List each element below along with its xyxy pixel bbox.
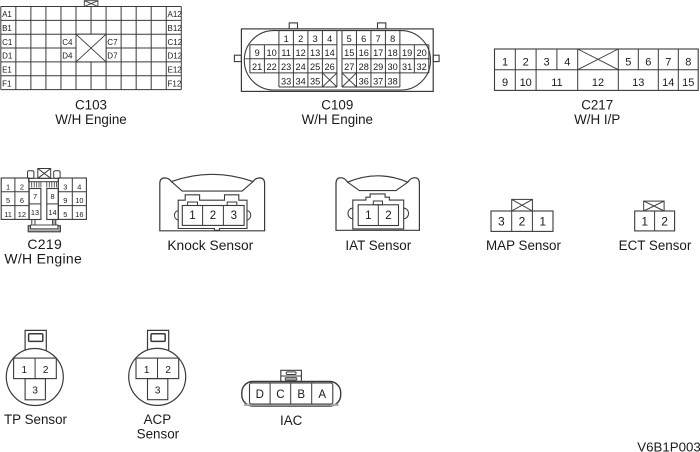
svg-text:6: 6 [361,34,366,44]
svg-text:10: 10 [520,77,532,89]
svg-text:11: 11 [281,48,291,58]
svg-text:34: 34 [296,76,306,86]
svg-text:4: 4 [327,34,332,44]
svg-text:29: 29 [373,62,383,72]
svg-text:33: 33 [281,76,291,86]
svg-text:23: 23 [281,62,291,72]
svg-text:3: 3 [313,34,318,44]
svg-text:7: 7 [665,56,671,68]
svg-text:ACP: ACP [144,412,172,427]
svg-text:9: 9 [255,48,260,58]
svg-text:D4: D4 [62,52,73,61]
svg-text:3: 3 [498,214,505,228]
svg-text:19: 19 [402,48,412,58]
svg-text:13: 13 [632,77,644,89]
svg-text:16: 16 [75,210,83,219]
svg-text:10: 10 [267,48,277,58]
svg-text:5: 5 [6,196,10,205]
svg-text:F12: F12 [168,79,182,88]
svg-text:A12: A12 [168,10,183,19]
svg-text:8: 8 [685,56,691,68]
svg-text:10: 10 [75,196,83,205]
svg-text:2: 2 [661,214,668,228]
svg-text:D7: D7 [107,52,118,61]
svg-text:14: 14 [48,208,56,217]
svg-text:15: 15 [682,77,694,89]
svg-text:B12: B12 [168,24,183,33]
svg-text:D1: D1 [2,52,13,61]
svg-text:36: 36 [359,76,369,86]
svg-text:1: 1 [502,56,508,68]
svg-text:14: 14 [662,77,674,89]
svg-text:6: 6 [20,196,24,205]
svg-text:C12: C12 [168,38,183,47]
svg-text:8: 8 [50,192,54,201]
svg-text:26: 26 [325,62,335,72]
svg-text:MAP Sensor: MAP Sensor [486,238,561,253]
svg-text:8: 8 [390,34,395,44]
svg-text:2: 2 [165,365,171,376]
svg-text:V6B1P003: V6B1P003 [637,440,700,452]
svg-text:W/H Engine: W/H Engine [302,112,373,127]
svg-text:31: 31 [402,62,412,72]
svg-text:9: 9 [502,77,508,89]
svg-text:17: 17 [373,48,383,58]
svg-text:2: 2 [210,210,216,222]
svg-text:12: 12 [18,210,26,219]
svg-text:TP Sensor: TP Sensor [4,412,68,427]
svg-text:18: 18 [388,48,398,58]
svg-text:38: 38 [388,76,398,86]
svg-text:1: 1 [144,365,150,376]
svg-text:C217: C217 [581,98,613,113]
svg-text:9: 9 [63,196,67,205]
svg-text:1: 1 [189,210,195,222]
svg-text:7: 7 [33,192,37,201]
svg-text:11: 11 [551,77,562,89]
svg-text:6: 6 [645,56,651,68]
svg-text:4: 4 [564,56,570,68]
svg-text:IAC: IAC [280,413,303,428]
svg-text:C7: C7 [107,38,118,47]
svg-text:28: 28 [359,62,369,72]
svg-text:C: C [276,389,284,401]
svg-text:24: 24 [296,62,306,72]
svg-text:15: 15 [344,48,354,58]
svg-text:A: A [318,389,326,401]
svg-text:1: 1 [22,365,28,376]
svg-text:Sensor: Sensor [137,427,180,442]
svg-text:2: 2 [523,56,529,68]
svg-text:35: 35 [310,76,320,86]
svg-text:A1: A1 [2,10,12,19]
svg-text:14: 14 [325,48,335,58]
svg-text:2: 2 [519,214,526,228]
svg-text:37: 37 [373,76,383,86]
svg-text:22: 22 [267,62,277,72]
svg-text:D12: D12 [168,52,183,61]
svg-text:25: 25 [310,62,320,72]
svg-text:C1: C1 [2,38,13,47]
svg-text:32: 32 [416,62,426,72]
svg-text:2: 2 [20,182,24,191]
svg-text:12: 12 [296,48,306,58]
svg-text:IAT Sensor: IAT Sensor [345,238,411,253]
svg-text:13: 13 [310,48,320,58]
svg-text:C109: C109 [321,98,353,113]
svg-text:Knock Sensor: Knock Sensor [167,238,253,253]
svg-text:16: 16 [359,48,369,58]
svg-text:5: 5 [63,210,67,219]
svg-text:4: 4 [77,182,81,191]
svg-text:13: 13 [31,208,39,217]
svg-text:1: 1 [641,214,648,228]
svg-text:20: 20 [416,48,426,58]
svg-text:C4: C4 [62,38,73,47]
svg-text:30: 30 [388,62,398,72]
svg-text:E1: E1 [2,66,12,75]
svg-text:11: 11 [4,210,12,219]
svg-text:1: 1 [365,210,371,222]
svg-text:W/H I/P: W/H I/P [574,112,620,127]
svg-text:2: 2 [385,210,391,222]
svg-text:1: 1 [284,34,289,44]
svg-text:F1: F1 [2,79,12,88]
svg-text:3: 3 [231,210,237,222]
svg-text:7: 7 [376,34,381,44]
svg-text:3: 3 [155,385,161,396]
svg-text:W/H Engine: W/H Engine [4,251,82,267]
svg-text:ECT Sensor: ECT Sensor [619,238,692,253]
svg-text:5: 5 [625,56,631,68]
svg-text:3: 3 [543,56,549,68]
svg-text:C103: C103 [75,98,107,113]
svg-text:D: D [256,389,264,401]
svg-text:1: 1 [6,182,10,191]
svg-text:2: 2 [43,365,49,376]
svg-text:2: 2 [298,34,303,44]
svg-text:W/H Engine: W/H Engine [55,112,126,127]
svg-text:12: 12 [592,77,604,89]
svg-text:B: B [297,389,305,401]
svg-text:21: 21 [252,62,262,72]
svg-text:1: 1 [539,214,546,228]
svg-text:3: 3 [32,385,38,396]
svg-text:3: 3 [63,182,67,191]
svg-text:B1: B1 [2,24,12,33]
svg-text:27: 27 [344,62,354,72]
svg-text:E12: E12 [168,66,183,75]
svg-text:5: 5 [347,34,352,44]
